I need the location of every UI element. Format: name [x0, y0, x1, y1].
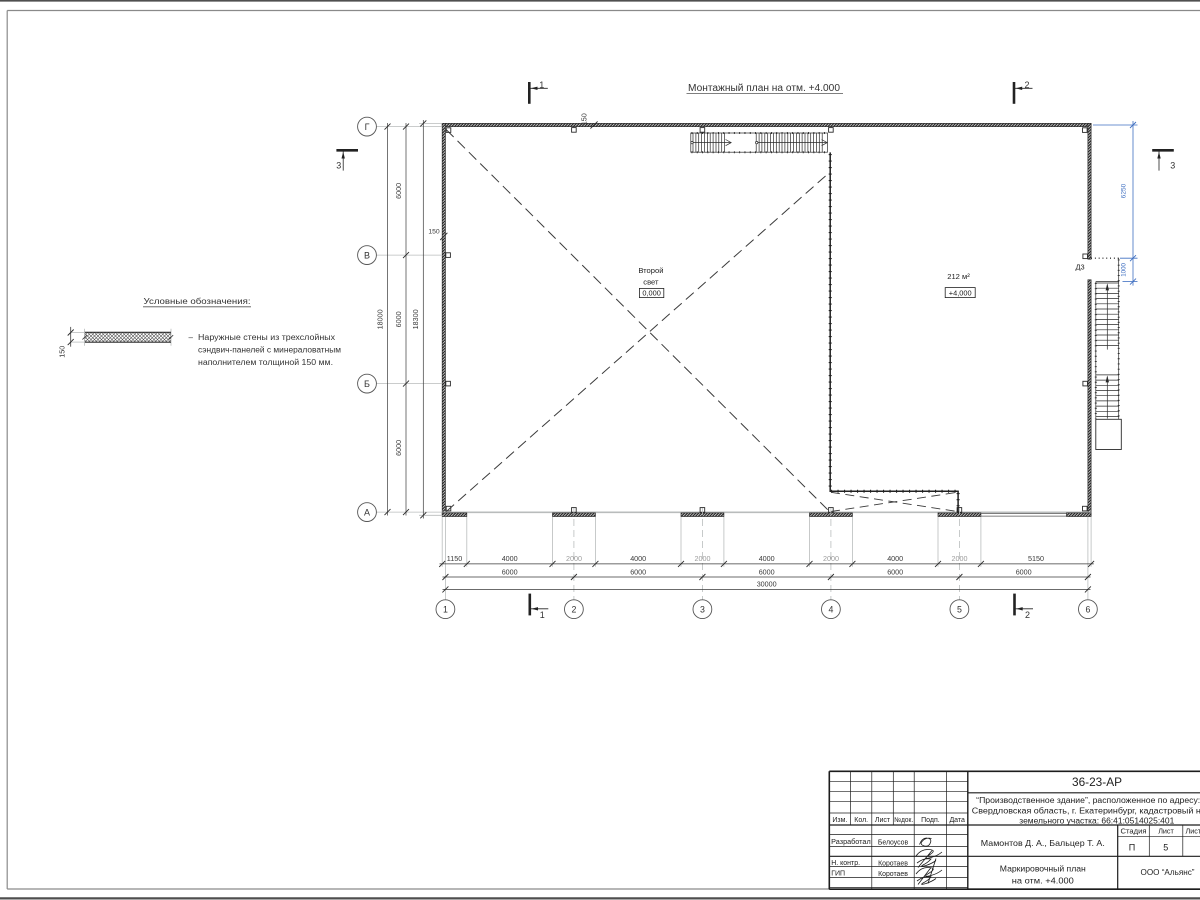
svg-text:Лист: Лист	[1158, 827, 1174, 836]
svg-text:Наружные стены из трехслойных: Наружные стены из трехслойных	[198, 333, 335, 342]
svg-text:Второй: Второй	[638, 266, 663, 275]
svg-text:6250: 6250	[1121, 183, 1128, 198]
svg-text:Изм.: Изм.	[832, 817, 847, 824]
svg-text:6: 6	[1085, 604, 1090, 614]
svg-text:Г: Г	[365, 122, 370, 132]
svg-text:2000: 2000	[823, 554, 839, 563]
svg-text:30000: 30000	[757, 580, 777, 589]
svg-text:150: 150	[580, 113, 589, 125]
svg-text:5: 5	[957, 604, 962, 614]
svg-text:6000: 6000	[394, 311, 403, 327]
svg-text:5150: 5150	[1028, 554, 1044, 563]
svg-text:1150: 1150	[447, 554, 462, 563]
svg-text:4000: 4000	[759, 554, 775, 563]
svg-text:Маркировочный план: Маркировочный план	[1000, 864, 1086, 873]
svg-text:Листы: Листы	[1186, 827, 1200, 836]
svg-text:6000: 6000	[394, 183, 403, 199]
svg-text:Лист: Лист	[875, 817, 891, 824]
svg-text:2000: 2000	[695, 554, 711, 563]
svg-text:наполнителем толщиной 150 мм.: наполнителем толщиной 150 мм.	[198, 358, 333, 367]
svg-text:6000: 6000	[887, 567, 903, 576]
svg-text:Мамонтов Д. А., Бальцер Т. А.: Мамонтов Д. А., Бальцер Т. А.	[981, 839, 1105, 848]
svg-text:Монтажный план на отм. +4.000: Монтажный план на отм. +4.000	[688, 83, 841, 94]
svg-text:6000: 6000	[1016, 567, 1032, 576]
svg-text:3: 3	[1170, 160, 1175, 170]
svg-text:1: 1	[539, 80, 544, 90]
svg-text:на отм. +4.000: на отм. +4.000	[1012, 876, 1075, 885]
svg-text:“Производственное здание”, рас: “Производственное здание”, расположенное…	[976, 796, 1200, 805]
svg-text:Дата: Дата	[949, 817, 965, 824]
svg-text:ООО “Альянс”: ООО “Альянс”	[1141, 868, 1195, 877]
svg-text:Б: Б	[364, 379, 370, 389]
svg-text:4000: 4000	[502, 554, 518, 563]
svg-text:1000: 1000	[1121, 262, 1128, 276]
svg-text:2: 2	[1024, 80, 1029, 90]
svg-text:212 м²: 212 м²	[947, 272, 970, 281]
svg-text:А: А	[364, 507, 370, 517]
svg-text:+4,000: +4,000	[949, 288, 972, 297]
svg-text:2000: 2000	[566, 554, 582, 563]
svg-text:4000: 4000	[630, 554, 646, 563]
svg-text:Д3: Д3	[1075, 263, 1084, 272]
svg-text:Белоусов: Белоусов	[878, 840, 909, 847]
svg-text:1: 1	[540, 610, 545, 620]
svg-text:36-23-АР: 36-23-АР	[1072, 775, 1122, 789]
svg-text:6000: 6000	[394, 440, 403, 456]
svg-text:0,000: 0,000	[642, 288, 661, 297]
svg-text:6000: 6000	[502, 567, 518, 576]
svg-text:1: 1	[443, 604, 448, 614]
svg-text:4000: 4000	[887, 554, 903, 563]
svg-text:18300: 18300	[411, 309, 420, 329]
svg-text:земельного участка: 66:41:0514: земельного участка: 66:41:0514025:401	[1019, 817, 1175, 826]
svg-text:2: 2	[571, 604, 576, 614]
svg-text:–: –	[189, 333, 194, 342]
svg-text:№док.: №док.	[894, 817, 913, 824]
svg-text:18000: 18000	[375, 309, 384, 329]
svg-text:ГИП: ГИП	[831, 871, 845, 878]
svg-text:4: 4	[828, 604, 833, 614]
svg-text:Коротаев: Коротаев	[878, 860, 908, 867]
svg-text:2: 2	[1025, 610, 1030, 620]
svg-text:сэндвич‑панелей с минераловатн: сэндвич‑панелей с минераловатным	[198, 346, 341, 355]
svg-text:150: 150	[428, 229, 440, 236]
svg-text:6000: 6000	[759, 567, 775, 576]
svg-text:П: П	[1129, 842, 1135, 852]
svg-text:Разработал: Разработал	[831, 838, 871, 846]
svg-text:Свердловская область, г. Екате: Свердловская область, г. Екатеринбург, к…	[972, 806, 1200, 815]
svg-text:3: 3	[336, 161, 341, 171]
svg-text:Кол.: Кол.	[854, 817, 868, 824]
svg-text:свет: свет	[643, 277, 659, 286]
svg-text:5: 5	[1163, 842, 1168, 852]
svg-text:150: 150	[58, 346, 67, 358]
svg-text:Стадия: Стадия	[1121, 827, 1147, 836]
svg-text:6000: 6000	[630, 567, 646, 576]
svg-text:3: 3	[700, 604, 705, 614]
svg-text:Условные обозначения:: Условные обозначения:	[144, 296, 251, 306]
svg-text:Подп.: Подп.	[921, 817, 940, 824]
svg-text:В: В	[364, 250, 370, 260]
svg-text:Коротаев: Коротаев	[878, 871, 908, 878]
svg-text:2000: 2000	[952, 554, 968, 563]
svg-text:Н. контр.: Н. контр.	[831, 860, 860, 867]
